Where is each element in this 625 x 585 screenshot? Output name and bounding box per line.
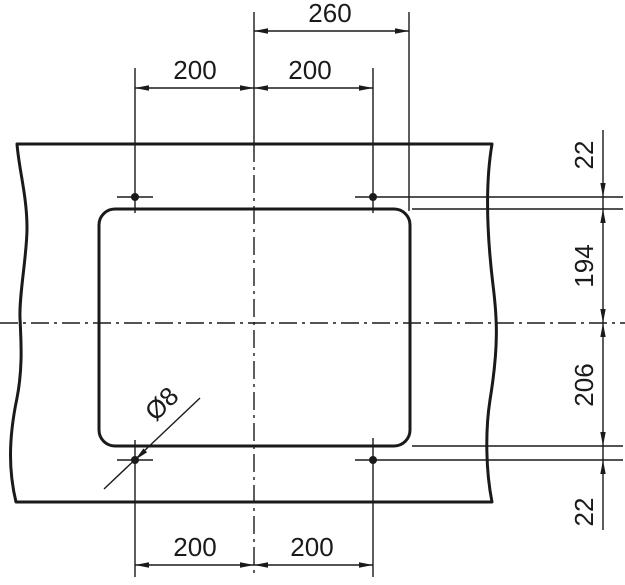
dim-label-22-bottom: 22: [569, 498, 599, 527]
dim-label-22-top: 22: [569, 141, 599, 170]
arrow-200tr-left: [254, 85, 268, 90]
dimension-arrowheads: [135, 28, 606, 567]
dim-label-200-bottom-left: 200: [173, 532, 216, 562]
dim-label-200-top-right: 200: [288, 55, 331, 85]
arrow-206-top: [600, 323, 605, 337]
arrow-200br-right: [359, 562, 373, 567]
arrow-200tl-right: [240, 85, 254, 90]
technical-drawing-canvas: 260 200 200 22 194 206 22 200 200 Ø8: [0, 0, 625, 585]
dim-label-200-top-left: 200: [173, 55, 216, 85]
arrow-200bl-right: [240, 562, 254, 567]
arrow-194-top: [600, 209, 605, 223]
hole-top-right: [369, 193, 377, 201]
hole-top-left: [131, 193, 139, 201]
arrow-260-left: [254, 28, 268, 33]
arrow-200br-left: [254, 562, 268, 567]
arrow-206-bottom: [600, 432, 605, 446]
dim-label-200-bottom-right: 200: [290, 532, 333, 562]
dimension-labels: 260 200 200 22 194 206 22 200 200 Ø8: [139, 0, 599, 562]
arrow-200bl-left: [135, 562, 149, 567]
cutout-dimension-drawing: 260 200 200 22 194 206 22 200 200 Ø8: [0, 0, 625, 585]
hole-bottom-left: [131, 456, 139, 464]
dim-label-194: 194: [569, 244, 599, 287]
arrow-22b-up: [600, 460, 605, 474]
dim-label-260: 260: [308, 0, 351, 28]
dim-label-206: 206: [569, 363, 599, 406]
arrow-194-bottom: [600, 309, 605, 323]
arrow-200tl-left: [135, 85, 149, 90]
extension-lines: [104, 12, 623, 577]
arrow-260-right: [395, 28, 409, 33]
arrow-22t-down: [600, 183, 605, 197]
hole-bottom-right: [369, 456, 377, 464]
arrow-200tr-right: [359, 85, 373, 90]
